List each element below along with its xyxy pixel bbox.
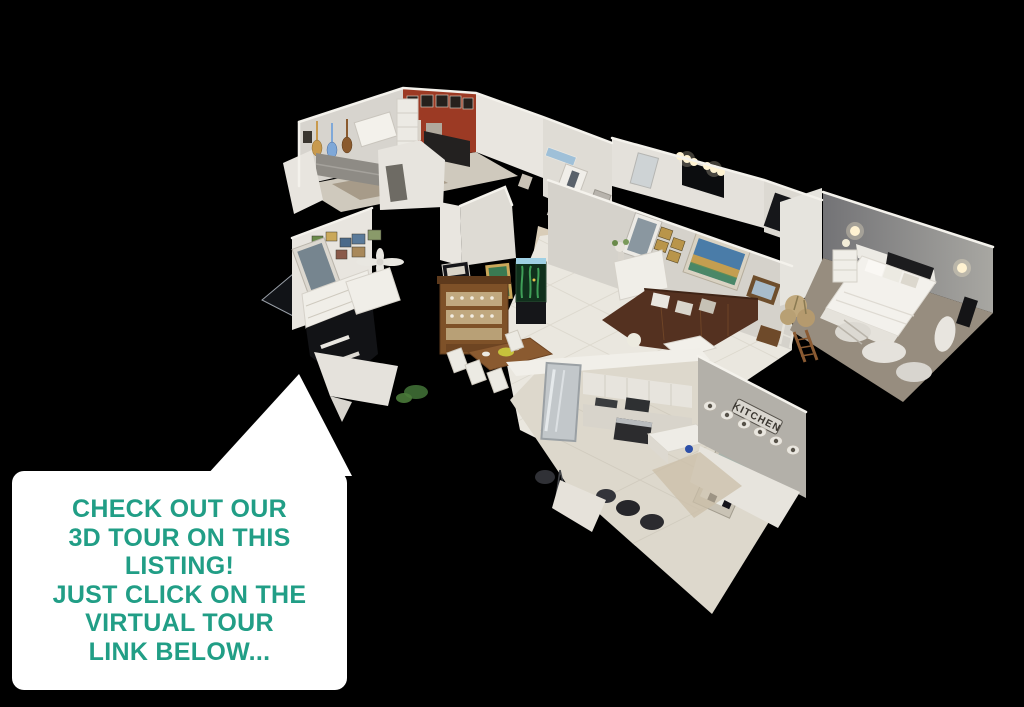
aquarium — [516, 258, 546, 324]
bubble-line-2: 3D TOUR ON THIS — [68, 524, 290, 553]
blue-kettle — [685, 445, 693, 453]
bubble-line-6: LINK BELOW... — [89, 638, 271, 667]
center-wall-wedge — [460, 187, 516, 266]
leaning-dark-mirror — [262, 274, 297, 318]
aquarium-light — [516, 258, 546, 264]
bubble-line-5: VIRTUAL TOUR — [85, 609, 274, 638]
white-blanket — [627, 333, 641, 347]
small-dark-art — [303, 131, 312, 143]
bubble-line-3: LISTING! — [125, 552, 234, 581]
center-wall-left-face — [440, 202, 462, 266]
aquarium-fish — [533, 279, 536, 282]
lower-left-corner-wall — [314, 352, 398, 406]
bubble-line-4: JUST CLICK ON THE — [53, 581, 307, 610]
bubble-line-1: CHECK OUT OUR — [72, 495, 287, 524]
master-bedroom — [780, 188, 993, 402]
torn-corner-bit — [330, 396, 352, 422]
entry-frame-decor — [518, 174, 533, 190]
china-hutch — [437, 276, 511, 354]
nightstand-dresser — [833, 250, 857, 282]
aquarium-stand — [516, 302, 546, 324]
guitar-wall-display — [312, 119, 352, 158]
plant-blob-2 — [396, 393, 412, 403]
table-plate-1 — [482, 352, 490, 357]
leaning-silver-mirror — [541, 363, 580, 441]
table-lamp — [842, 239, 850, 247]
real-estate-promo-image: KITCHEN — [0, 0, 1024, 707]
speech-bubble: CHECK OUT OUR 3D TOUR ON THIS LISTING! J… — [12, 471, 347, 690]
